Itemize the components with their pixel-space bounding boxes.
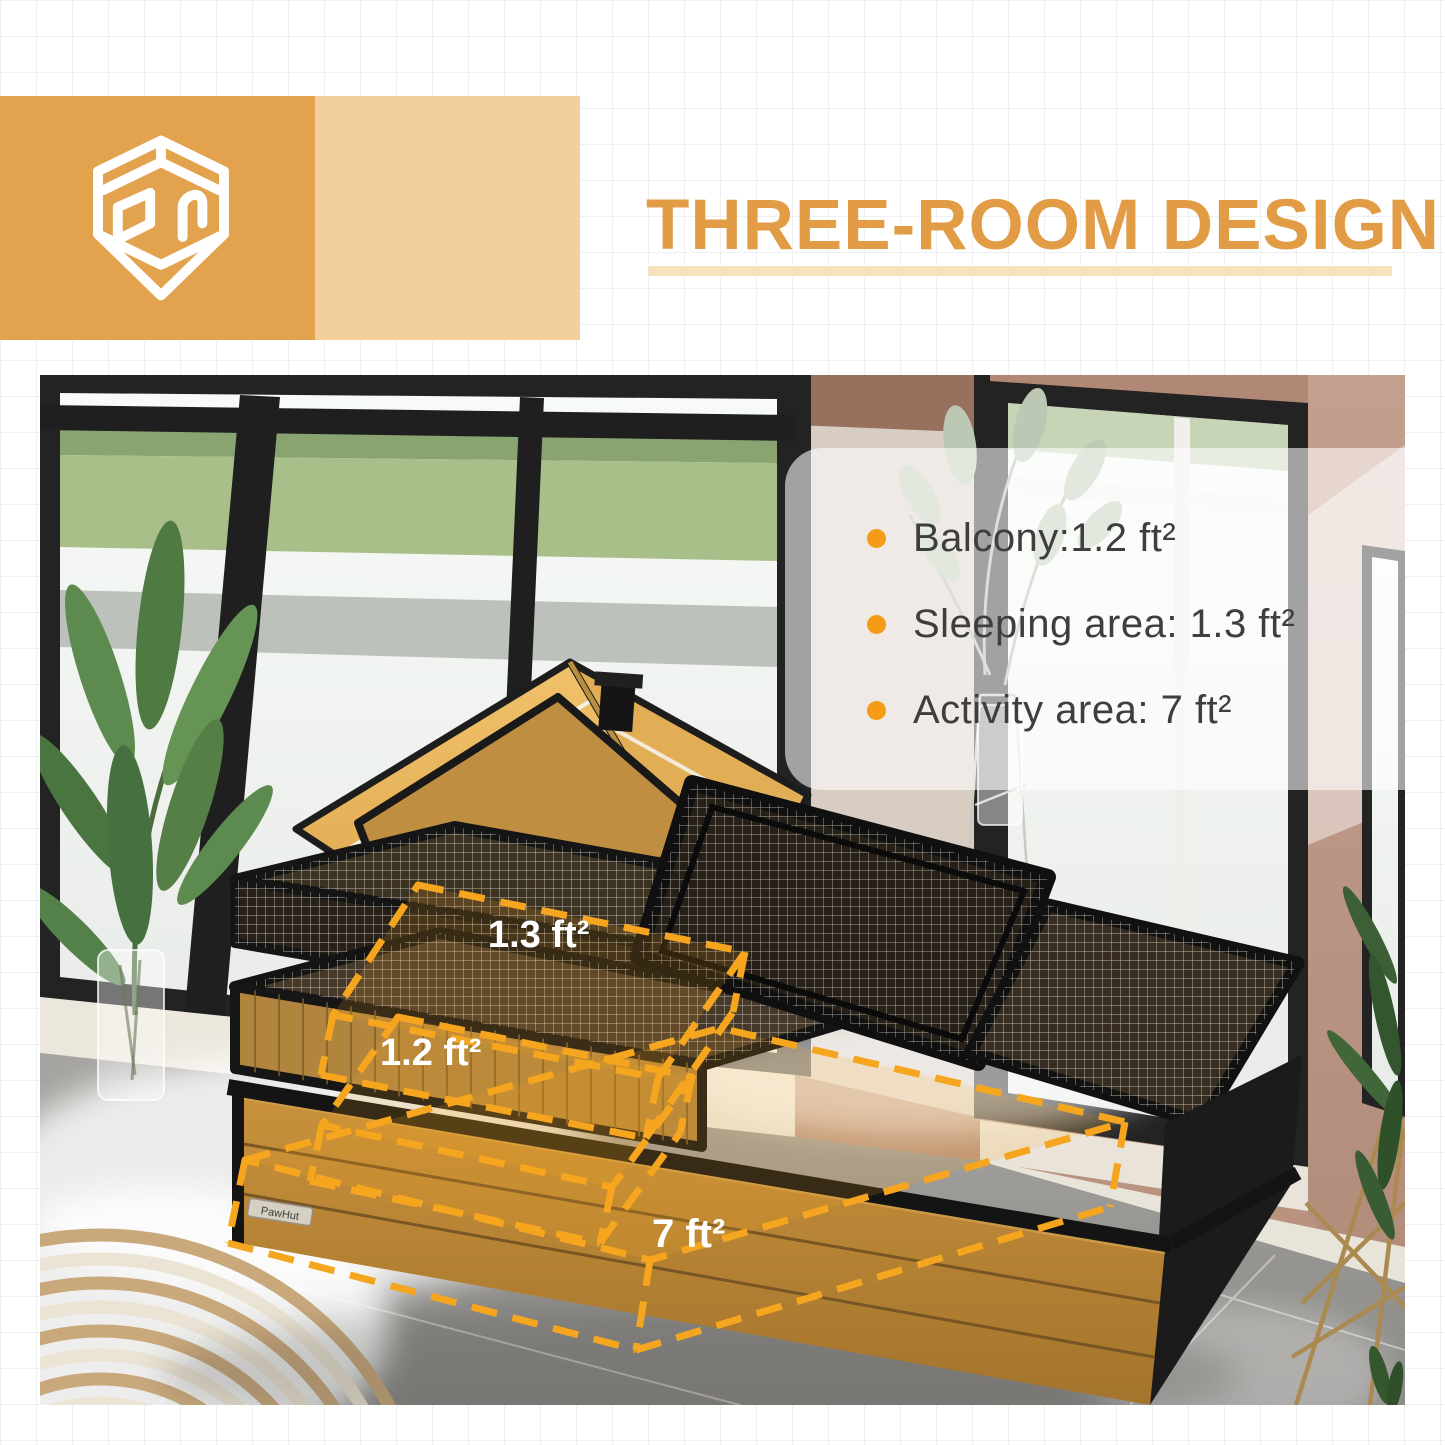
activity-area-label: 7 ft² (652, 1212, 725, 1256)
header-accent-light-block (315, 96, 580, 340)
bullet-icon (867, 529, 886, 548)
feature-panel: Balcony:1.2 ft² Sleeping area: 1.3 ft² A… (785, 448, 1405, 790)
feature-item-balcony: Balcony:1.2 ft² (867, 518, 1405, 558)
title-underline (648, 266, 1392, 276)
feature-item-activity: Activity area: 7 ft² (867, 690, 1405, 730)
bullet-icon (867, 615, 886, 634)
room-cube-icon (70, 128, 252, 308)
sleeping-area-label: 1.3 ft² (488, 914, 589, 956)
balcony-area-label: 1.2 ft² (380, 1032, 481, 1074)
feature-item-sleeping: Sleeping area: 1.3 ft² (867, 604, 1405, 644)
feature-item-label: Sleeping area: 1.3 ft² (913, 602, 1295, 647)
bullet-icon (867, 701, 886, 720)
feature-item-label: Balcony:1.2 ft² (913, 516, 1176, 561)
page-title: THREE-ROOM DESIGN (646, 190, 1426, 261)
feature-item-label: Activity area: 7 ft² (913, 688, 1232, 733)
feature-list: Balcony:1.2 ft² Sleeping area: 1.3 ft² A… (867, 518, 1405, 730)
